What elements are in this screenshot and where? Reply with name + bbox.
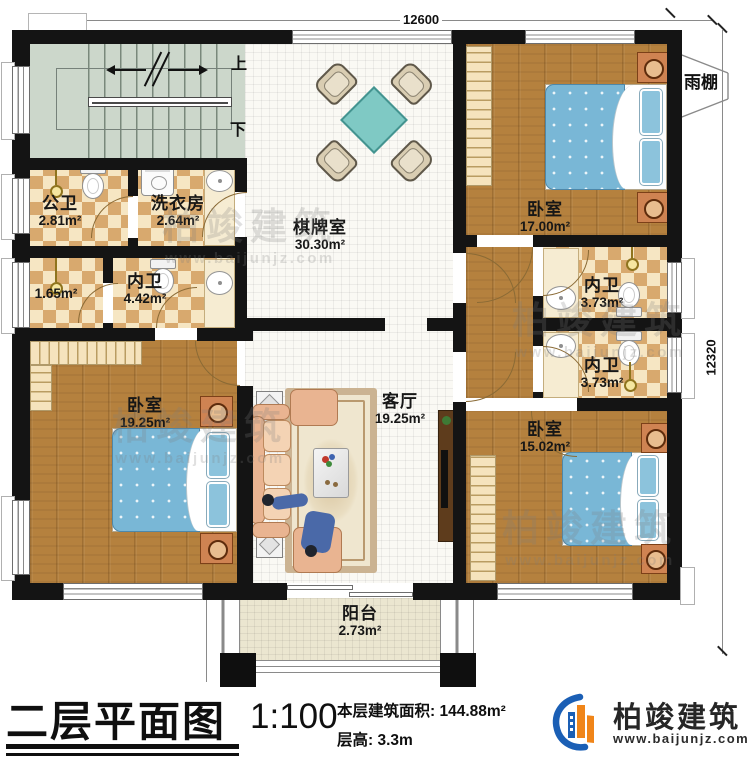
stair-arrow-line [168,69,202,71]
wall [203,583,287,600]
title-underline [6,753,239,756]
room-label-bedroom-br: 卧室 15.02m² [505,420,585,454]
person-head [262,494,274,506]
wall [466,235,477,247]
wall [413,583,497,600]
window [667,337,682,393]
pillow [640,139,662,185]
pillow [638,500,658,540]
pillow [638,456,658,496]
floor-plan: 12600 12320 雨棚 上 下 [0,0,750,763]
wall [633,583,682,600]
stair-arrow-right [199,65,208,75]
lamp-cord [55,258,57,282]
wall [30,328,155,341]
armchair [290,389,338,426]
pillow [207,482,229,527]
sink [206,271,233,295]
room-label-game-room: 棋牌室 30.30m² [265,218,375,252]
flower-decor [329,454,335,460]
drawing-title: 二层平面图 [6,688,226,749]
balcony-railing-bottom [240,660,440,673]
floor-height-text: 层高: 3.3m [337,728,413,750]
room-label-ensuite-r1: 内卫 3.73m² [570,276,634,310]
room-label-bedroom-tr: 卧室 17.00m² [500,200,590,234]
wall [533,392,543,398]
window-sill [681,258,695,319]
stair-up-label: 上 [231,50,247,74]
wall [12,583,63,600]
sofa-cushion [263,454,291,486]
window-sill [681,333,695,399]
nightstand [641,423,669,453]
wall [533,235,682,247]
nightstand [200,533,233,564]
ceiling-lamp [626,258,639,271]
window [497,583,633,600]
wall [453,402,466,583]
window [292,30,452,44]
sink [206,170,233,192]
dimension-right: 12320 [704,336,719,378]
room-label-ensuite-west: 内卫 4.42m² [112,272,178,306]
table-item [325,480,330,485]
stair-handrail [88,97,232,107]
window [12,500,30,575]
dimension-top: 12600 [400,12,442,27]
wall [237,386,253,583]
pillow [640,89,662,135]
room-label-laundry: 洗衣房 2.64m² [135,194,221,228]
wall [245,318,385,331]
stair-arrow-line [112,69,146,71]
tv [441,450,448,508]
floor-area-text: 本层建筑面积: 144.88m² [337,699,506,721]
room-label-living: 客厅 19.25m² [350,392,450,426]
window [12,262,30,328]
wall [128,238,138,253]
dim-tick [665,8,675,18]
nightstand [637,192,668,223]
balcony-column-left [220,653,256,687]
wall [577,398,682,411]
nightstand [200,396,233,427]
person-head [305,545,317,557]
company-website: www.baijunjz.com [613,731,749,746]
sofa-cushion [263,420,291,452]
room-label-balcony: 阳台 2.73m² [315,604,405,638]
sliding-door-panel [287,585,353,590]
wall [453,303,466,352]
room-label-ensuite-r2: 内卫 3.73m² [570,356,634,390]
pillow [207,433,229,478]
stair-arrow-left [106,65,115,75]
canopy-label: 雨棚 [684,68,718,93]
wardrobe [466,46,492,186]
company-logo-icon [546,692,610,756]
wardrobe [470,455,496,581]
sliding-door-panel [349,592,413,597]
dresser [30,365,52,411]
window [525,30,635,44]
balcony-column-right [440,653,476,687]
dimension-line-top [53,20,713,21]
wardrobe [30,341,142,365]
window [63,583,203,600]
window [667,262,682,313]
flower-decor [326,461,332,467]
window [12,66,30,134]
room-label-bedroom-bl: 卧室 19.25m² [100,396,190,430]
nightstand [637,52,668,83]
window-sill [680,567,695,605]
wall [667,30,682,600]
title-underline [6,744,239,749]
drawing-scale: 1:100 [250,697,338,737]
stair-down-label: 下 [230,116,246,140]
wall [103,323,113,340]
table-item [333,482,338,487]
wall [235,158,247,192]
room-label-public-bath: 公卫 2.81m² [24,194,96,228]
wall [128,163,138,196]
nightstand [641,544,669,574]
sofa-armrest [252,522,290,538]
company-logo-name: 柏竣建筑 [613,694,741,736]
wall [533,318,682,331]
wall [453,30,466,253]
room-label-closet: 1.65m² [30,286,82,301]
